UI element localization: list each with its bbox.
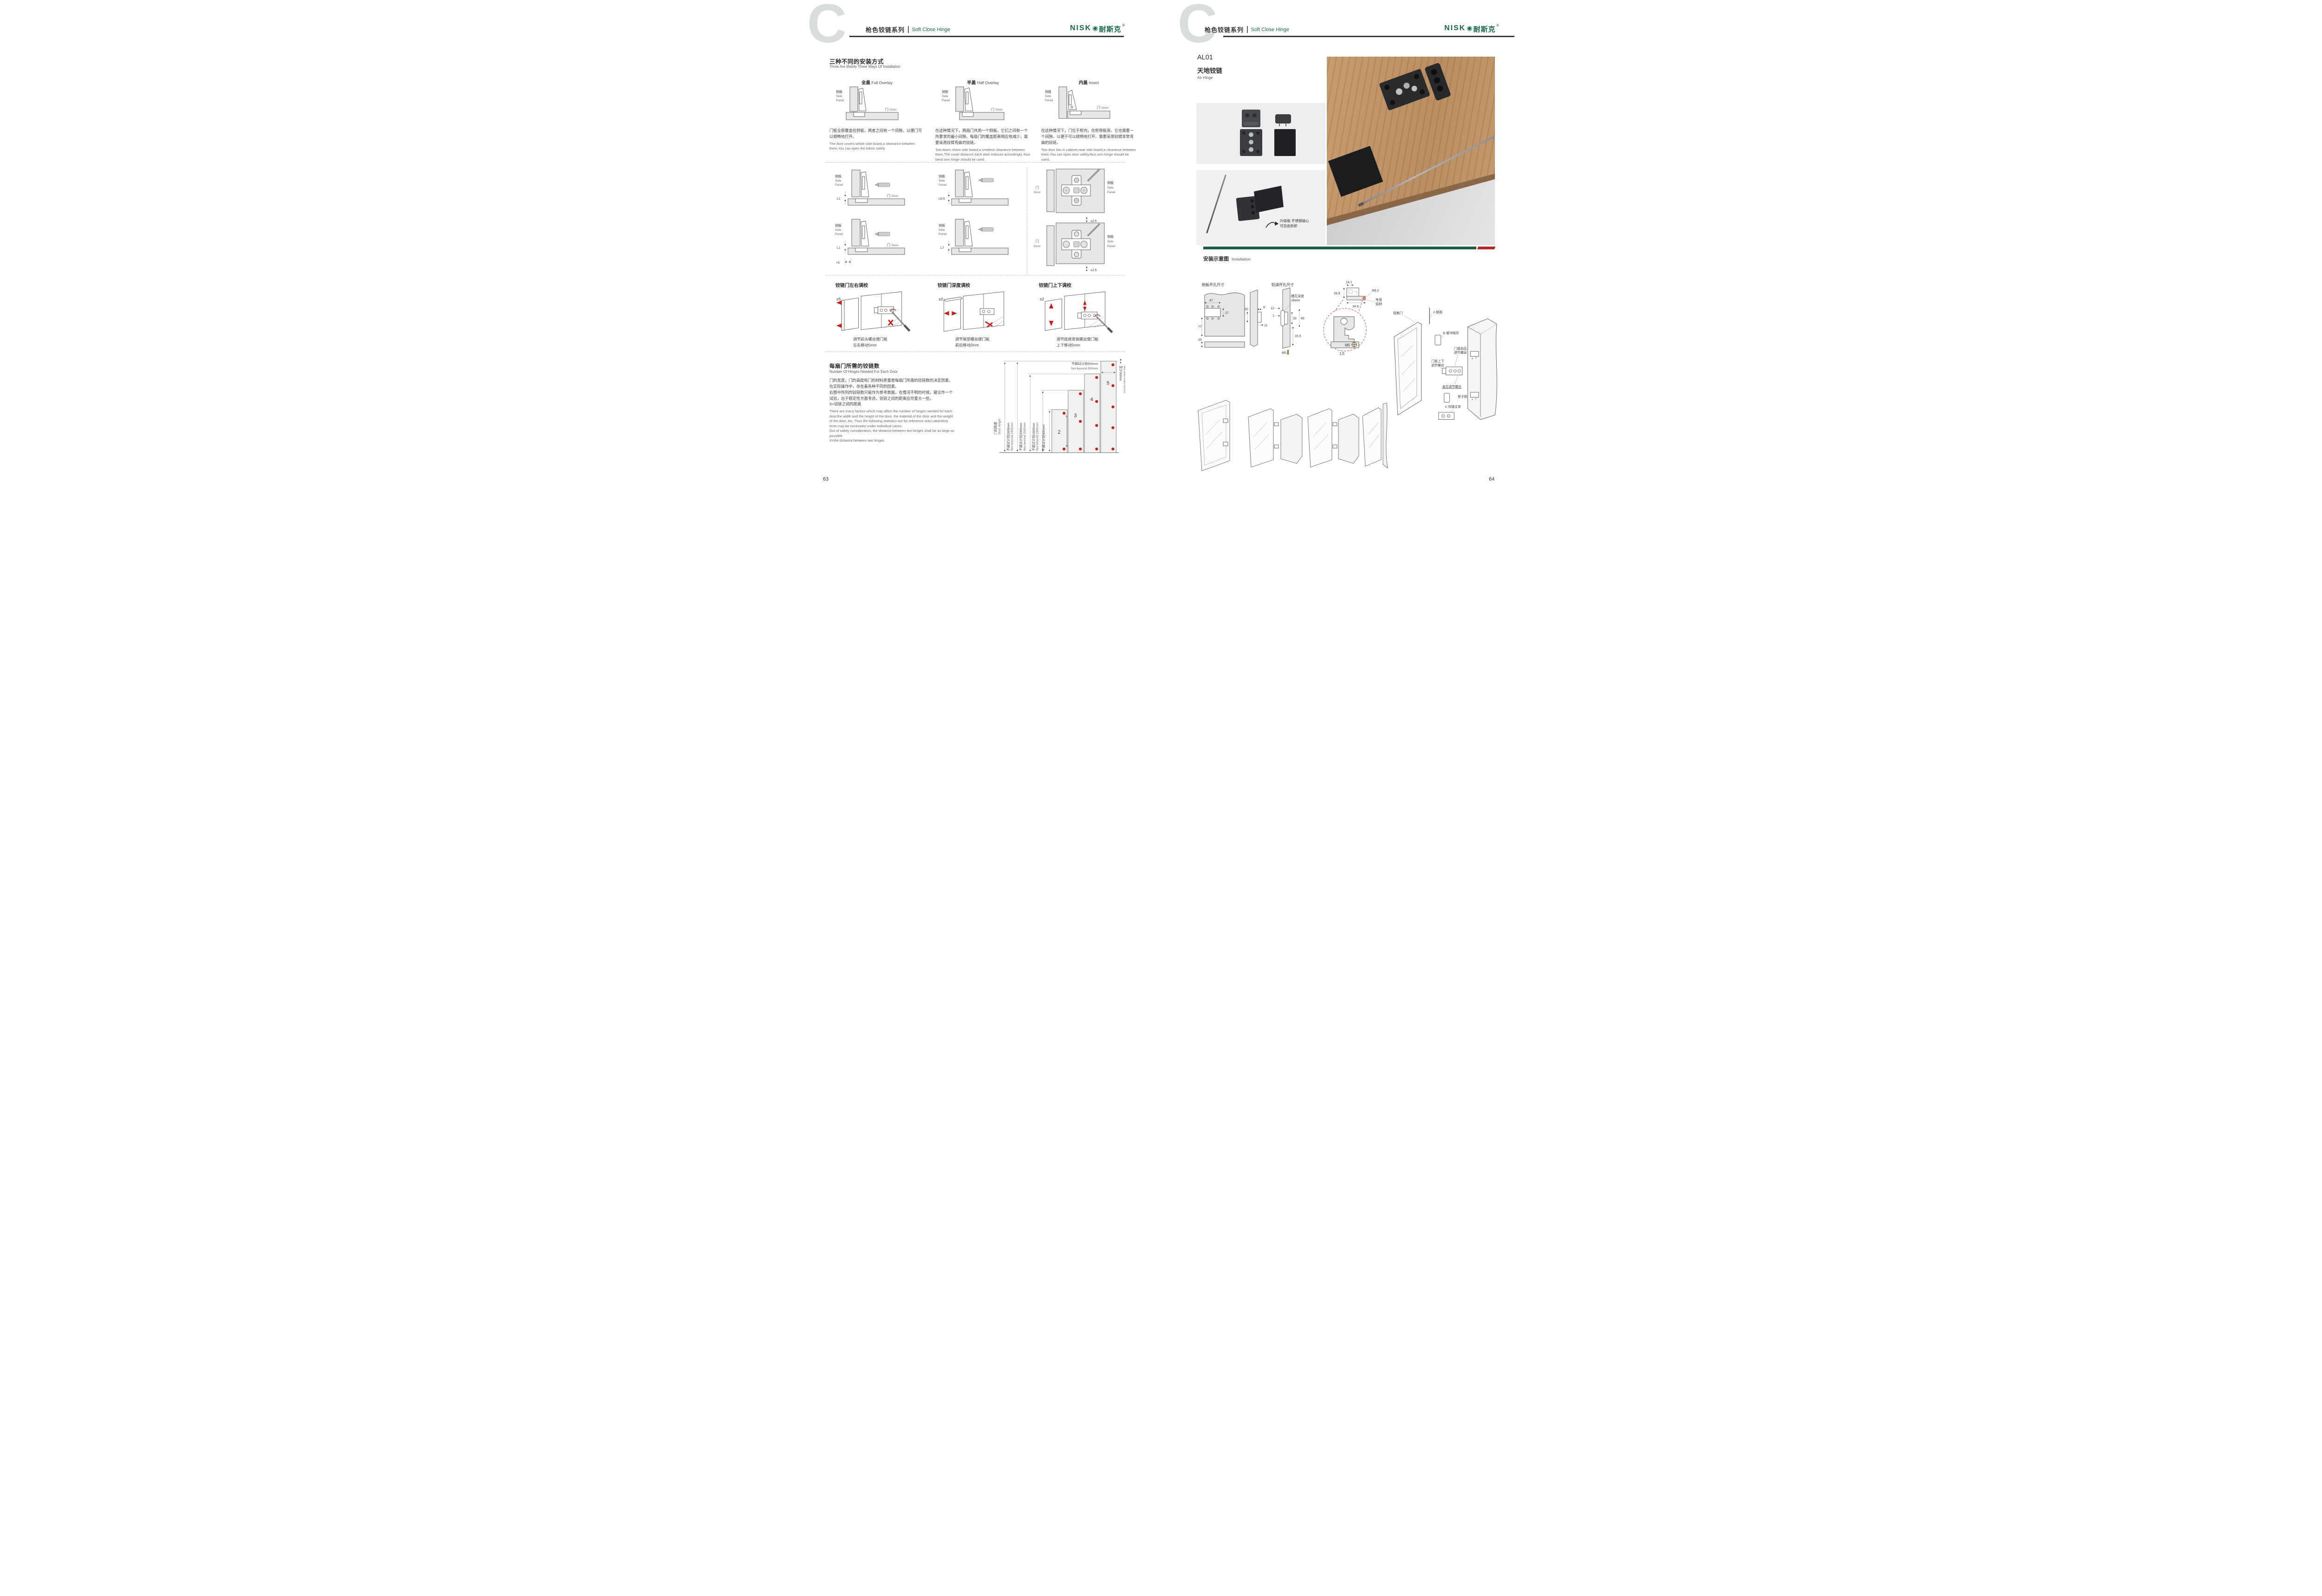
svg-text:M5: M5 [1282, 352, 1286, 355]
hinge-count-en: There are many factors which may affect … [829, 409, 985, 443]
col-body-zh: 门板全部覆盖住侧板，两者之间有一个间隙，以便门可以顺畅地打开。 [829, 128, 925, 140]
hinge-count-title-zh: 每扇门所需的铰链数 [829, 362, 985, 370]
svg-text:Side: Side [1045, 95, 1051, 98]
svg-text:Side: Side [835, 228, 841, 232]
svg-text:Door: Door [1034, 191, 1041, 194]
bar-count-4: 4 [1090, 397, 1093, 403]
svg-text:20: 20 [1245, 308, 1248, 311]
svg-text:1: 1 [1272, 314, 1274, 318]
svg-text:侧板: 侧板 [835, 174, 841, 178]
logo-zh: 耐斯克 [1099, 24, 1121, 34]
adjust-title: 铰链门左右调校 [835, 281, 931, 288]
svg-text:不超过计划1600mm: 不超过计划1600mm [1031, 423, 1036, 451]
label-a-pin: A 插销 [1433, 310, 1442, 314]
label-up-down: 门板上下 [1431, 359, 1444, 363]
series-title-zh: 枪色铰链系列 [1205, 25, 1244, 34]
svg-text:Not bevond 2400mm: Not bevond 2400mm [1011, 422, 1014, 451]
svg-text:门: 门 [991, 107, 994, 111]
page-header-right: 枪色铰链系列 Soft Close Hinge [1205, 25, 1289, 34]
catalog-spread: C 枪色铰链系列 Soft Close Hinge NISK ◉ 耐斯克 ® 三… [796, 0, 1526, 499]
svg-text:侧板: 侧板 [1045, 90, 1051, 94]
col-head: 内盖 Insert [1041, 79, 1136, 85]
svg-text:Panel: Panel [1107, 245, 1115, 248]
svg-text:Door: Door [1102, 106, 1109, 110]
hinge-flag-plate [1254, 186, 1284, 213]
plate-diagram-1: 门 Door 侧板 Side Panel [1032, 167, 1125, 215]
adjust-caption: 调节底座安装螺丝使门板 上下移动5mm [1057, 336, 1134, 348]
bar-count-3: 3 [1074, 413, 1077, 419]
edge-90-zh: 至少90mm [1119, 366, 1122, 381]
svg-text:侧板: 侧板 [939, 174, 945, 178]
product-photo-main [1327, 57, 1495, 245]
svg-text:Side: Side [1107, 240, 1114, 243]
svg-text:Panel: Panel [939, 183, 947, 187]
svg-text:15.5: 15.5 [1295, 335, 1301, 338]
col-head: 全盖 Full Overlay [829, 79, 925, 85]
svg-text:侧板: 侧板 [939, 223, 945, 228]
svg-text:侧板: 侧板 [942, 90, 948, 94]
slot-depth-label: 槽孔深度 [1291, 294, 1304, 298]
separator-vertical-dashed [1027, 167, 1027, 273]
svg-text:门: 门 [1097, 105, 1100, 110]
cover-plate [1274, 129, 1296, 156]
col-body-en: The door covers whole side board,a clear… [829, 142, 925, 151]
photo-annotation: 升级版·不锈钢轴心 可自由拆卸 [1280, 218, 1309, 229]
svg-text:8: 8 [1263, 306, 1265, 309]
steel-pin [1206, 175, 1226, 233]
adjust-dim: ±5 [836, 297, 841, 301]
svg-text:Side: Side [835, 179, 841, 182]
adjust-block-ud: 铰链门上下调校 ±2 调节底座安装螺丝使门板 上下移动5mm [1039, 281, 1134, 348]
svg-text:Not bevond 2000mm: Not bevond 2000mm [1023, 422, 1026, 451]
series-title-en: Soft Close Hinge [1251, 27, 1290, 33]
adjust-dim: ±2 [1040, 297, 1044, 301]
offset-diagram-L0-5: 侧板 Side Panel L0.5 [933, 168, 1026, 213]
adjust-title: 铰链门上下调校 [1039, 281, 1134, 288]
product-code: AL01 [1197, 54, 1222, 61]
offset-diagram-L1-plus5: 侧板 Side Panel 门 Door L1 +5 [829, 217, 922, 268]
nisko-logo: NISK ◉ 耐斯克 ® [1444, 24, 1499, 34]
offset-extra: +5 [836, 261, 840, 265]
svg-text:46: 46 [1301, 317, 1304, 320]
svg-text:调节螺丝: 调节螺丝 [1431, 363, 1444, 367]
dim-plus-minus: ±2.5 [1090, 220, 1097, 223]
svg-text:Door: Door [996, 108, 1003, 111]
header-divider [908, 26, 909, 33]
divider-green-bar [1203, 247, 1476, 249]
axis-door-height-zh: 门的高度 [993, 422, 998, 434]
registered-mark: ® [1122, 24, 1124, 27]
offset-diagram-L7: 侧板 Side Panel L7 [933, 217, 1026, 262]
svg-text:不超过计划2000mm: 不超过计划2000mm [1019, 423, 1023, 451]
svg-text:不超过计划2400mm: 不超过计划2400mm [1006, 423, 1010, 451]
page-header-left: 枪色铰链系列 Soft Close Hinge [866, 25, 950, 34]
svg-text:专用: 专用 [1376, 298, 1382, 302]
svg-text:Panel: Panel [835, 183, 843, 187]
col-body-zh: 在这种情况下，两扇门共用一个侧板。它们之间有一个所要求的最小间隙。每扇门的覆盖距… [935, 128, 1031, 146]
insert-diagram: 侧板 Side Panel 门 Door [1041, 85, 1125, 123]
svg-text:Door: Door [892, 195, 899, 198]
offset-value: L1 [837, 197, 841, 201]
logo-target-icon: ◉ [1467, 24, 1472, 32]
col-body-en: Tow door lies in cabinet,near side board… [1041, 148, 1136, 163]
head-en: Full Overlay [872, 80, 893, 85]
axis-door-height-en: Door height [998, 418, 1001, 434]
svg-text:Panel: Panel [1045, 99, 1053, 102]
logo-target-icon: ◉ [1092, 24, 1098, 32]
svg-text:Door: Door [1034, 245, 1041, 248]
svg-text:11: 11 [1264, 324, 1267, 327]
exploded-diagram: 铝框门 A 插销 B 缓冲阻尼 门板前后 调节螺丝 门板上下 调节螺丝 盖位调节… [1391, 306, 1500, 427]
label-front-back: 门板前后 [1454, 346, 1467, 351]
svg-text:77: 77 [1198, 326, 1202, 329]
header-divider [1247, 26, 1248, 33]
installation-heading: 安装示意图 Installation [1203, 255, 1251, 262]
label-cover-adjust: 盖位调节螺丝 [1442, 384, 1461, 389]
bar-count-2: 2 [1058, 430, 1061, 435]
full-overlay-diagram: 侧板 Side Panel 门 Door [829, 85, 913, 123]
plate-diagram-2: ±2.5 门 Door 侧板 Side Panel ±2.5 [1032, 216, 1125, 272]
label-alu-door: 铝框门 [1393, 311, 1403, 315]
side-drill-title: 侧板开孔尺寸 [1202, 282, 1224, 287]
install-col-insert: 内盖 Insert 侧板 Side Panel 门 Door 在这种情况下，门位… [1041, 79, 1136, 162]
adjust-block-depth: 铰链门深度调校 ±2 调节尾部螺丝使门板 前后移动2mm [938, 281, 1033, 348]
half-overlay-diagram: 侧板 Side Panel 门 Door [935, 85, 1019, 123]
svg-text:28.9: 28.9 [1334, 292, 1340, 295]
separator-dashed [825, 162, 1125, 163]
install-ways-title-en: Three Are Mainly Three Ways Of Installat… [829, 65, 900, 69]
edge-90-en: Not less than 90mm [1123, 366, 1125, 393]
label-b-damper: B 缓冲阻尼 [1443, 331, 1459, 335]
offset-diagram-L1: 侧板 Side Panel 门 Door L1 [829, 168, 922, 213]
adjust-title: 铰链门深度调校 [938, 281, 1033, 288]
logo-latin: NISK [1070, 24, 1091, 33]
door-label: 门 [885, 107, 888, 111]
dim-plus-minus: ±2.5 [1090, 269, 1097, 272]
hinge-count-chart: 2 3 4 5 门的高度 Door height 不超过计划2400mm Not… [993, 358, 1125, 466]
svg-text:27: 27 [1225, 312, 1229, 315]
adjust-caption: 调节前头螺丝使门板 左右移动5mm [853, 336, 931, 348]
adjust-diagram-lr: ±5 [835, 288, 926, 334]
product-photo-pin: 升级版·不锈钢轴心 可自由拆卸 [1196, 170, 1325, 245]
product-name-en: Air Hinge [1197, 76, 1222, 80]
door-width-zh: 不超过计划600mm [1072, 362, 1098, 366]
svg-text:不超过计划900mm: 不超过计划900mm [1041, 424, 1045, 451]
alu-drill-diagram: 铝调开孔尺寸 20 8 11 槽孔深度 18mm 12 1 33 46 15.5… [1245, 281, 1314, 356]
separator-dashed [825, 275, 1125, 275]
bar-count-5: 5 [1107, 381, 1109, 386]
alu-drill-title: 铝调开孔尺寸 [1272, 282, 1294, 287]
series-badge-letter: C [807, 0, 847, 51]
product-photo-parts [1196, 103, 1325, 164]
detail-diagram: 14.1 28.9 34.9 Φ6.2 专用 铝材 M5 1:5 [1316, 278, 1402, 358]
svg-text:Not bevond 1600mm: Not bevond 1600mm [1036, 422, 1039, 451]
svg-text:Panel: Panel [835, 233, 843, 236]
svg-text:门: 门 [887, 243, 890, 247]
offset-value: L7 [940, 247, 944, 250]
svg-text:铝材: 铝材 [1376, 302, 1382, 306]
header-rule-left [849, 36, 1124, 37]
svg-text:Door: Door [890, 108, 897, 111]
svg-text:34.9: 34.9 [1352, 305, 1359, 308]
nisko-logo: NISK ◉ 耐斯克 ® [1070, 24, 1125, 34]
adjust-diagram-depth: ±2 [938, 288, 1028, 334]
label-c-body: C 铰链主体 [1445, 404, 1461, 409]
col-body-en: Tow doors share side board,a smallest cl… [935, 148, 1031, 163]
offset-value: L1 [837, 247, 841, 250]
col-body-zh: 在这种情况下，门位于柜内，在柜侧板旁。它也需要一个间隙。以便于可以顺畅地打开。需… [1041, 128, 1136, 146]
door-width-en: Not bevond 600mm [1071, 367, 1098, 370]
offset-value: L0.5 [939, 197, 945, 201]
svg-text:Side: Side [942, 95, 948, 98]
series-title-en: Soft Close Hinge [912, 27, 951, 33]
assembly-sequence-sketches [1194, 390, 1389, 478]
svg-text:Side: Side [836, 95, 842, 98]
col-head: 半盖 Half Overlay [935, 79, 1031, 85]
svg-text:门: 门 [1036, 185, 1039, 189]
hinge-base-plate [1240, 129, 1262, 156]
svg-text:Side: Side [939, 179, 945, 182]
svg-text:Side: Side [1107, 186, 1114, 189]
svg-text:门: 门 [887, 194, 890, 198]
head-zh: 全盖 [861, 80, 870, 85]
hinge-count-zh: 门的宽度，门的高度和门的材料质量是每扇门所需的铰链数的决定因素。 在实际操作中，… [829, 378, 985, 407]
page-number-right: 64 [1489, 476, 1494, 482]
curly-arrow-icon [1265, 219, 1279, 229]
side-panel-label: 侧板 [836, 90, 842, 94]
adjust-dim: ±2 [939, 297, 943, 301]
svg-text:33: 33 [1293, 317, 1297, 320]
svg-text:门: 门 [1036, 239, 1039, 243]
svg-text:25: 25 [1198, 339, 1202, 342]
install-col-half-overlay: 半盖 Half Overlay 侧板 Side Panel 门 Door 在这种… [935, 79, 1031, 162]
svg-text:M5: M5 [1345, 343, 1350, 347]
svg-text:Panel: Panel [1107, 191, 1115, 194]
adjust-diagram-ud: ±2 [1039, 288, 1129, 334]
series-title-zh: 枪色铰链系列 [866, 25, 905, 34]
svg-text:18mm: 18mm [1291, 299, 1300, 302]
svg-text:调节螺丝: 调节螺丝 [1454, 351, 1467, 355]
svg-text:Side: Side [939, 228, 945, 232]
svg-text:Door: Door [892, 244, 899, 247]
divider-red-segment [1477, 247, 1495, 249]
product-block: AL01 天地铰链 Air Hinge [1197, 54, 1222, 80]
svg-text:14.1: 14.1 [1346, 281, 1352, 284]
adjust-block-lr: 铰链门左右调校 ±5 调节前头螺丝使门板 左右移动5mm [835, 281, 931, 348]
svg-text:47: 47 [1209, 299, 1213, 302]
install-col-full-overlay: 全盖 Full Overlay 侧板 Side Panel 门 Door 门板全… [829, 79, 925, 151]
svg-text:Φ6.2: Φ6.2 [1372, 289, 1379, 293]
svg-text:Panel: Panel [942, 99, 950, 102]
header-rule-right [1223, 36, 1514, 37]
svg-text:侧板: 侧板 [1107, 235, 1114, 239]
adjust-caption: 调节尾部螺丝使门板 前后移动2mm [955, 336, 1033, 348]
hinge-count-text: 每扇门所需的铰链数 Number Of Hinges Needed For Ea… [829, 362, 985, 443]
detail-scale: 1:5 [1339, 352, 1345, 356]
svg-text:Panel: Panel [939, 233, 947, 236]
svg-text:Panel: Panel [836, 99, 844, 102]
page-number-left: 63 [823, 476, 828, 482]
svg-text:侧板: 侧板 [835, 223, 841, 228]
product-name-zh: 天地铰链 [1197, 65, 1222, 75]
separator-dashed [825, 352, 1125, 352]
hinge-top-piece [1242, 110, 1260, 127]
svg-text:12: 12 [1271, 307, 1274, 310]
hinge-count-title-en: Number Of Hinges Needed For Each Door [829, 370, 985, 374]
damper-part [1275, 114, 1291, 124]
svg-text:侧板: 侧板 [1107, 181, 1114, 185]
